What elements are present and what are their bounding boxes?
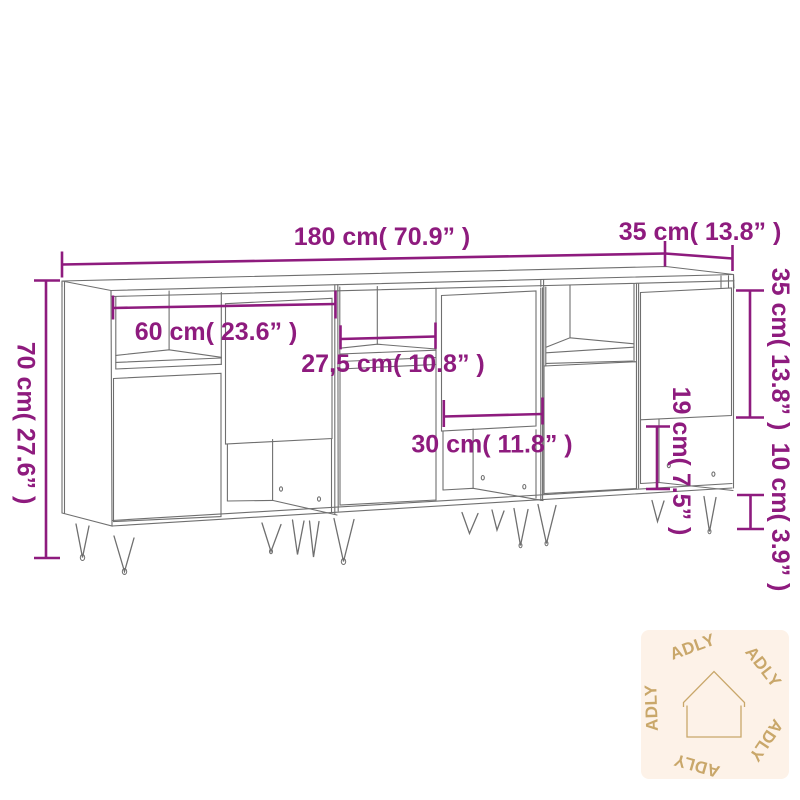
svg-text:30 cm( 11.8” ): 30 cm( 11.8” ) — [411, 431, 572, 459]
svg-text:60 cm( 23.6” ): 60 cm( 23.6” ) — [135, 318, 298, 346]
svg-text:10 cm( 3.9” ): 10 cm( 3.9” ) — [766, 443, 794, 592]
svg-text:19 cm( 7.5” ): 19 cm( 7.5” ) — [667, 387, 695, 536]
svg-text:27,5 cm( 10.8” ): 27,5 cm( 10.8” ) — [301, 350, 484, 378]
svg-text:35 cm( 13.8” ): 35 cm( 13.8” ) — [766, 268, 794, 431]
svg-text:ADLY: ADLY — [641, 684, 662, 732]
svg-text:35 cm( 13.8” ): 35 cm( 13.8” ) — [619, 218, 782, 246]
svg-text:180 cm( 70.9” ): 180 cm( 70.9” ) — [294, 223, 471, 251]
svg-text:70 cm( 27.6” ): 70 cm( 27.6” ) — [12, 342, 40, 505]
